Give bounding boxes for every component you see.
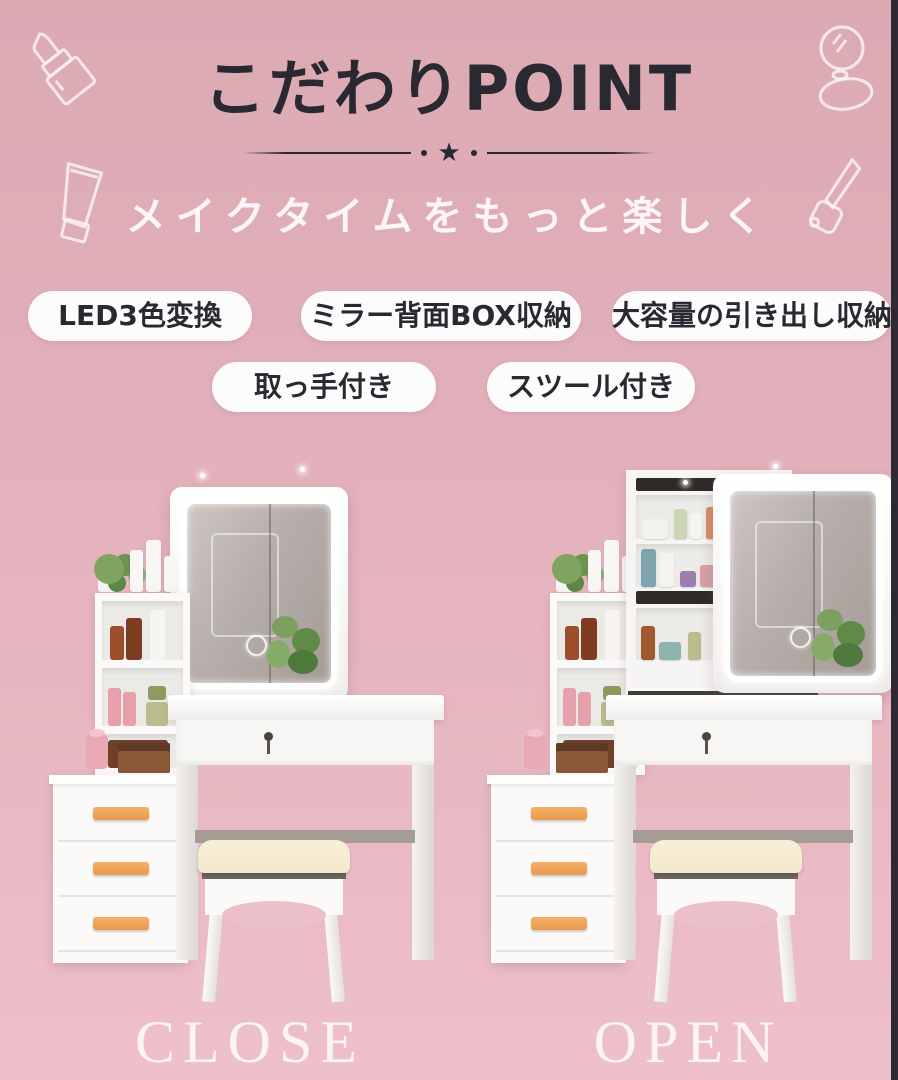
- desk-drawer: [176, 720, 434, 765]
- keyhole: [702, 732, 711, 741]
- caption-open: OPEN: [478, 1008, 898, 1077]
- drawer-handle: [93, 862, 149, 875]
- shelf-opening: [102, 601, 183, 660]
- feature-badge-mirror-box: ミラー背面BOX収納: [301, 291, 581, 341]
- product-photo-open: [478, 462, 898, 1014]
- led-strip: [181, 498, 337, 689]
- stool-cushion: [650, 840, 802, 873]
- drawer-handle: [531, 917, 587, 930]
- plant-pot: [98, 568, 122, 592]
- promo-page: こだわりPOINT ★ メイクタイムをもっと楽しく LED3色変換 ミラー背面B…: [0, 0, 898, 1080]
- sparkle: [200, 473, 205, 478]
- cup-item: [524, 735, 546, 769]
- sparkle: [683, 480, 688, 485]
- cosmetic-item: [164, 556, 177, 592]
- drawer-cabinet: [53, 775, 188, 963]
- sparkle: [773, 464, 778, 469]
- stool: [198, 840, 350, 1002]
- touch-button: [246, 635, 267, 656]
- title-divider: ★: [0, 138, 898, 168]
- divider-dot: [471, 150, 477, 156]
- sparkle: [300, 467, 305, 472]
- cosmetic-item: [146, 540, 161, 592]
- product-photo-close: [40, 462, 460, 1014]
- feature-badge-handle: 取っ手付き: [212, 362, 436, 412]
- stool: [650, 840, 802, 1002]
- led-strip: [724, 485, 882, 682]
- stool-leg: [324, 912, 345, 1003]
- cabinet-top-items: [498, 743, 628, 775]
- divider-line: [243, 152, 411, 154]
- drawer: [58, 787, 183, 842]
- drawer: [58, 897, 183, 952]
- desk-top: [606, 695, 882, 720]
- drawer: [58, 842, 183, 897]
- page-subtitle: メイクタイムをもっと楽しく: [0, 184, 898, 242]
- tower-top-items: [90, 534, 200, 594]
- stool-leg: [776, 912, 797, 1003]
- cup-item: [86, 735, 108, 769]
- divider-dot: [421, 150, 427, 156]
- feature-badge-stool: スツール付き: [487, 362, 695, 412]
- desk-top: [168, 695, 444, 720]
- led-mirror-open: [713, 474, 893, 693]
- drawer: [496, 787, 621, 842]
- feature-badge-drawer: 大容量の引き出し収納: [612, 291, 891, 341]
- star-icon: ★: [437, 140, 460, 166]
- divider-line: [487, 152, 655, 154]
- desk-leg: [614, 762, 636, 960]
- drawer-handle: [531, 807, 587, 820]
- plant: [552, 554, 582, 584]
- plant-pot: [556, 568, 580, 592]
- keyhole: [264, 732, 273, 741]
- cosmetic-item: [588, 550, 601, 592]
- box-item: [556, 743, 608, 773]
- desk-leg: [850, 762, 872, 960]
- caption-close: CLOSE: [40, 1008, 460, 1077]
- desk-leg: [412, 762, 434, 960]
- drawer-handle: [93, 807, 149, 820]
- desk-leg: [176, 762, 198, 960]
- drawer: [496, 897, 621, 952]
- touch-button: [790, 627, 811, 648]
- stool-apron: [205, 879, 343, 915]
- cosmetic-item: [130, 550, 143, 592]
- stool-apron: [657, 879, 795, 915]
- cosmetic-item: [604, 540, 619, 592]
- stool-leg: [654, 912, 675, 1003]
- photo-edge-strip: [891, 0, 898, 1080]
- stool-cushion: [198, 840, 350, 873]
- drawer-handle: [531, 862, 587, 875]
- plant-reflection: [266, 614, 322, 676]
- box-item: [118, 743, 170, 773]
- desk-drawer: [614, 720, 872, 765]
- plant-reflection: [811, 607, 867, 669]
- drawer-handle: [93, 917, 149, 930]
- stool-leg: [202, 912, 223, 1003]
- feature-badge-led: LED3色変換: [28, 291, 252, 341]
- page-title: こだわりPOINT: [0, 38, 898, 128]
- plant: [94, 554, 124, 584]
- drawer: [496, 842, 621, 897]
- drawer-cabinet: [491, 775, 626, 963]
- cabinet-top-items: [60, 743, 190, 775]
